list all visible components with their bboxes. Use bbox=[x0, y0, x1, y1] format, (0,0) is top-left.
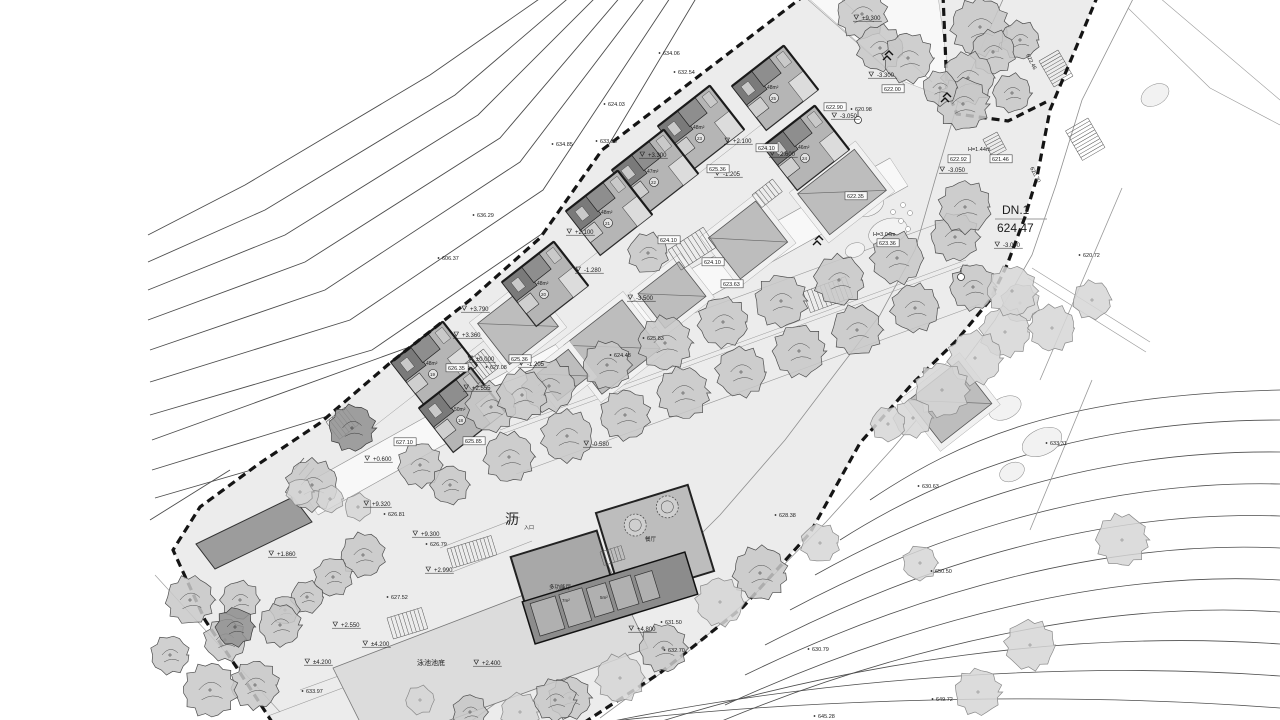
annotation-label: 624.03 bbox=[608, 102, 625, 108]
stepping-stone bbox=[908, 211, 913, 216]
annotation-label: 622.92 bbox=[950, 157, 967, 163]
tree bbox=[1074, 280, 1113, 320]
site-plan-drawing: +9.300-3.300-3.050-3.050+3.300+2.100+2.1… bbox=[0, 0, 1280, 720]
annotation-label: 633.98 bbox=[600, 139, 617, 145]
stepping-stone bbox=[891, 210, 896, 215]
annotation-label: 625.36 bbox=[511, 357, 528, 363]
tree-canopy bbox=[1095, 513, 1149, 565]
spot-elevation-dot bbox=[664, 649, 666, 651]
annotation-label: H=3.04m bbox=[873, 232, 896, 238]
path-edge-line bbox=[1128, 8, 1210, 88]
spot-elevation-dot bbox=[596, 140, 598, 142]
tree bbox=[955, 668, 1002, 715]
annotation-label: 632.54 bbox=[678, 70, 695, 76]
site-plan-page: +9.300-3.300-3.050-3.050+3.300+2.100+2.1… bbox=[0, 0, 1280, 720]
annotation-label: 626.79 bbox=[430, 542, 447, 548]
manhole-symbol bbox=[958, 274, 965, 281]
contour-line bbox=[790, 484, 1280, 610]
annotation-label: 636.29 bbox=[477, 213, 494, 219]
spot-elevation-dot bbox=[473, 214, 475, 216]
annotation-label: 624.47 bbox=[997, 221, 1034, 235]
contour-line bbox=[580, 671, 1280, 720]
annotation-label: 18 bbox=[458, 418, 464, 423]
annotation-label: 25 bbox=[771, 96, 777, 101]
annotation-label: 634.06 bbox=[663, 51, 680, 57]
stair-tread bbox=[1076, 136, 1099, 149]
annotation-label: 5m² bbox=[600, 595, 608, 600]
spot-elevation-dot bbox=[918, 485, 920, 487]
annotation-label: 628.38 bbox=[779, 513, 796, 519]
annotation-label: 47m² bbox=[647, 169, 659, 175]
tree bbox=[151, 636, 189, 675]
tree bbox=[183, 663, 237, 717]
annotation-label: +1.860 bbox=[277, 552, 296, 558]
stair-tread bbox=[1081, 145, 1104, 158]
spot-elevation-dot bbox=[659, 52, 661, 54]
path-edge-line bbox=[1210, 88, 1280, 125]
annotation-label: -1.280 bbox=[584, 268, 602, 274]
stepping-stone bbox=[899, 219, 904, 224]
annotation-label: 46m² bbox=[798, 145, 810, 151]
annotation-label: 21 bbox=[605, 221, 611, 226]
annotation-label: +2.990 bbox=[434, 568, 453, 574]
annotation-label: -0.580 bbox=[592, 442, 610, 448]
annotation-label: +9.300 bbox=[421, 532, 440, 538]
annotation-label: 7m² bbox=[562, 598, 570, 603]
spot-elevation-dot bbox=[387, 596, 389, 598]
annotation-label: 48m² bbox=[601, 210, 613, 216]
stair-tread bbox=[1067, 121, 1090, 134]
stepping-stone bbox=[901, 203, 906, 208]
annotation-label: 48m² bbox=[537, 281, 549, 287]
spot-elevation-dot bbox=[426, 543, 428, 545]
stair-tread bbox=[1082, 147, 1105, 160]
contour-line bbox=[148, 0, 545, 235]
annotation-label: 627.10 bbox=[396, 440, 413, 446]
contour-line bbox=[560, 699, 1280, 720]
annotation-label: -3.300 bbox=[877, 73, 895, 79]
annotation-label: 23 bbox=[697, 136, 703, 141]
spot-elevation-dot bbox=[552, 143, 554, 145]
annotation-label: ±0.000 bbox=[476, 357, 495, 363]
annotation-label: +2.555 bbox=[472, 386, 491, 392]
annotation-label: 624.10 bbox=[704, 260, 721, 266]
annotation-label: 625.36 bbox=[709, 167, 726, 173]
annotation-label: 627.08 bbox=[490, 365, 507, 371]
spot-elevation-dot bbox=[674, 71, 676, 73]
annotation-label: 19 bbox=[430, 372, 436, 377]
annotation-label: -2.600 bbox=[778, 152, 796, 158]
annotation-label: 620.98 bbox=[855, 107, 872, 113]
annotation-label: -3.050 bbox=[948, 168, 966, 174]
annotation-label: 626.81 bbox=[388, 512, 405, 518]
spot-elevation-dot bbox=[775, 514, 777, 516]
annotation-label: 634.85 bbox=[556, 142, 573, 148]
stair-tread bbox=[1069, 124, 1092, 137]
annotation-label: +9.300 bbox=[862, 16, 881, 22]
annotation-label: -3.000 bbox=[1003, 243, 1021, 249]
annotation-label: 631.50 bbox=[665, 620, 682, 626]
spot-elevation-dot bbox=[1079, 254, 1081, 256]
annotation-label: +3.790 bbox=[470, 307, 489, 313]
spot-elevation-dot bbox=[486, 366, 488, 368]
annotation-label: -3.500 bbox=[636, 296, 654, 302]
annotation-label: 20 bbox=[541, 292, 547, 297]
stair-tread bbox=[1074, 133, 1097, 146]
annotation-label: 多功能厅 bbox=[549, 583, 572, 591]
annotation-label: +2.100 bbox=[733, 139, 752, 145]
annotation-label: +0.600 bbox=[373, 457, 392, 463]
spot-elevation-dot bbox=[931, 570, 933, 572]
stair-tread bbox=[1071, 127, 1094, 140]
spot-elevation-dot bbox=[384, 513, 386, 515]
annotation-label: 餐厅 bbox=[645, 535, 657, 543]
annotation-label: +2.400 bbox=[482, 661, 501, 667]
spot-elevation-dot bbox=[643, 337, 645, 339]
annotation-label: 630.79 bbox=[812, 647, 829, 653]
spot-elevation-dot bbox=[814, 715, 816, 717]
annotation-label: 48m² bbox=[767, 85, 779, 91]
stair-tread bbox=[1077, 139, 1100, 152]
stepping-stone bbox=[906, 227, 911, 232]
annotation-label: 625.85 bbox=[465, 439, 482, 445]
annotation-label: 622.35 bbox=[847, 194, 864, 200]
annotation-label: 620.72 bbox=[1083, 253, 1100, 259]
path-edge-line bbox=[1040, 188, 1122, 380]
tree bbox=[903, 546, 939, 581]
annotation-label: +9.320 bbox=[372, 502, 391, 508]
annotation-label: 650.50 bbox=[935, 569, 952, 575]
annotation-label: 633.31 bbox=[1050, 441, 1067, 447]
annotation-label: 22 bbox=[651, 180, 657, 185]
annotation-label: +3.360 bbox=[462, 333, 481, 339]
annotation-label: 入口 bbox=[524, 525, 534, 531]
annotation-label: 622.00 bbox=[884, 87, 901, 93]
path-edge-line bbox=[1160, 0, 1280, 100]
annotation-label: 50m² bbox=[454, 407, 466, 413]
annotation-label: 沥 bbox=[505, 511, 519, 527]
spot-elevation-dot bbox=[610, 354, 612, 356]
spot-elevation-dot bbox=[604, 103, 606, 105]
annotation-label: 627.52 bbox=[391, 595, 408, 601]
annotation-label: 623.36 bbox=[879, 241, 896, 247]
tree bbox=[1004, 619, 1056, 671]
annotation-label: +2.550 bbox=[341, 623, 360, 629]
annotation-label: 624.10 bbox=[660, 238, 677, 244]
annotation-label: 泳池池底 bbox=[417, 658, 445, 667]
annotation-label: 649.72 bbox=[936, 697, 953, 703]
tree bbox=[1095, 513, 1149, 565]
annotation-label: +2.100 bbox=[575, 230, 594, 236]
spot-elevation-dot bbox=[932, 698, 934, 700]
spot-elevation-dot bbox=[302, 690, 304, 692]
annotation-label: 48m² bbox=[693, 125, 705, 131]
stair-tread bbox=[1072, 130, 1095, 143]
annotation-label: 632.70 bbox=[668, 648, 685, 654]
annotation-label: 625.83 bbox=[647, 336, 664, 342]
annotation-label: DN.1 bbox=[1002, 203, 1030, 217]
garden-blob bbox=[1137, 79, 1173, 111]
tree-canopy bbox=[903, 546, 939, 581]
annotation-label: -3.050 bbox=[840, 114, 858, 120]
spot-elevation-dot bbox=[438, 257, 440, 259]
annotation-label: +3.300 bbox=[648, 153, 667, 159]
annotation-label: 622.90 bbox=[826, 105, 843, 111]
annotation-label: 626.35 bbox=[448, 366, 465, 372]
annotation-label: 24 bbox=[802, 156, 808, 161]
annotation-label: 623.63 bbox=[723, 282, 740, 288]
spot-elevation-dot bbox=[1046, 442, 1048, 444]
annotation-label: 624.48 bbox=[614, 353, 631, 359]
annotation-label: 633.97 bbox=[306, 689, 323, 695]
annotation-label: 624.10 bbox=[758, 146, 775, 152]
annotation-label: 645.28 bbox=[818, 714, 835, 720]
contour-line bbox=[725, 579, 1280, 705]
annotation-label: +4.800 bbox=[637, 627, 656, 633]
stairs bbox=[1065, 118, 1105, 160]
contour-line bbox=[148, 0, 572, 262]
annotation-label: ±4.200 bbox=[371, 642, 390, 648]
stair-tread bbox=[1065, 118, 1088, 131]
annotation-label: 630.63 bbox=[922, 484, 939, 490]
annotation-label: H=1.44m bbox=[968, 147, 991, 153]
spot-elevation-dot bbox=[851, 108, 853, 110]
annotation-label: ±4.200 bbox=[313, 660, 332, 666]
spot-elevation-dot bbox=[661, 621, 663, 623]
spot-elevation-dot bbox=[808, 648, 810, 650]
annotation-label: 621.46 bbox=[992, 157, 1009, 163]
annotation-label: 48m² bbox=[426, 361, 438, 367]
contour-line bbox=[640, 641, 1280, 720]
annotation-label: 606.37 bbox=[442, 256, 459, 262]
stair-tread bbox=[1079, 142, 1102, 155]
